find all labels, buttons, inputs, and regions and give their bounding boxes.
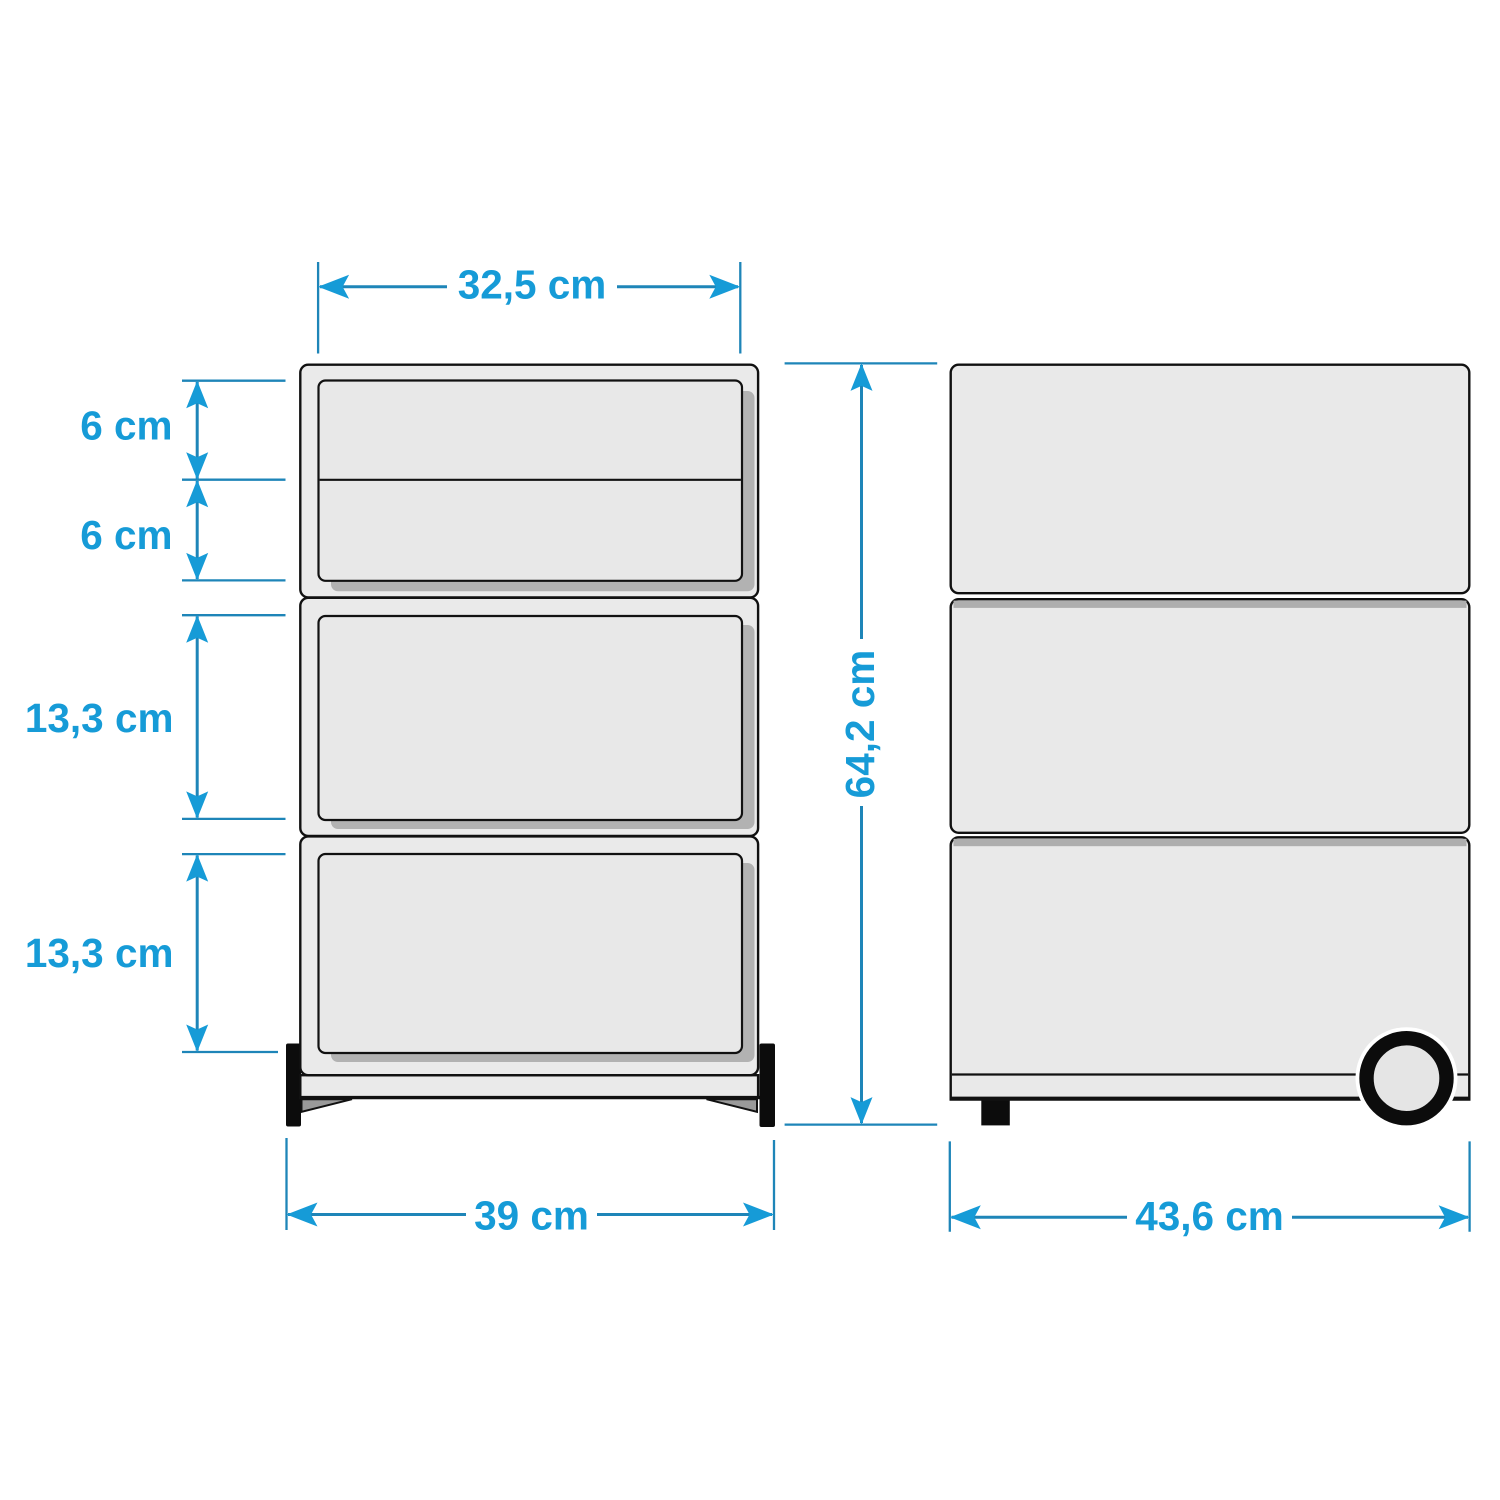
- svg-text:13,3 cm: 13,3 cm: [25, 695, 174, 741]
- svg-text:64,2 cm: 64,2 cm: [837, 650, 883, 799]
- svg-text:43,6 cm: 43,6 cm: [1135, 1193, 1284, 1239]
- svg-text:13,3 cm: 13,3 cm: [25, 930, 174, 976]
- svg-text:32,5 cm: 32,5 cm: [458, 261, 607, 307]
- svg-text:39 cm: 39 cm: [474, 1193, 589, 1239]
- svg-text:6 cm: 6 cm: [80, 403, 172, 449]
- svg-text:6 cm: 6 cm: [80, 512, 172, 558]
